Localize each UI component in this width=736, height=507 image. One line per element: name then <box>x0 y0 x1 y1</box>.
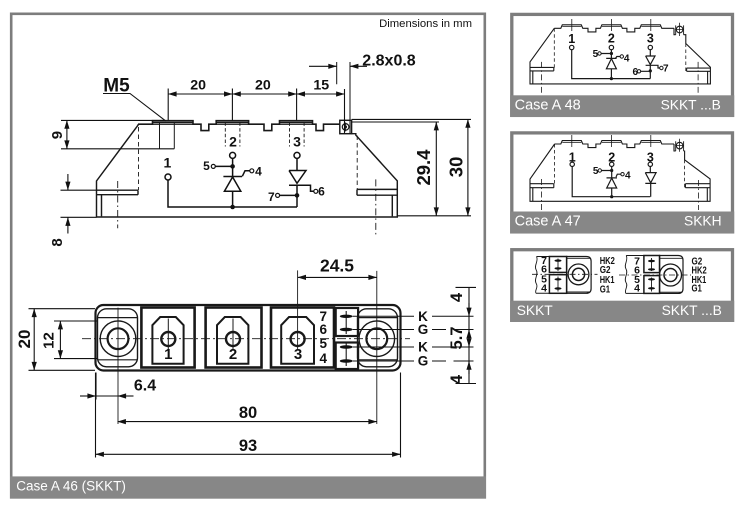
svg-text:20: 20 <box>255 78 271 94</box>
svg-text:5: 5 <box>203 159 210 173</box>
svg-text:4: 4 <box>448 292 466 302</box>
svg-text:4: 4 <box>448 374 466 384</box>
svg-text:3: 3 <box>294 346 302 363</box>
svg-text:20: 20 <box>15 330 34 349</box>
svg-text:M5: M5 <box>103 76 130 97</box>
svg-text:Dimensions in mm: Dimensions in mm <box>379 18 472 30</box>
svg-text:6: 6 <box>320 322 328 337</box>
svg-text:80: 80 <box>239 404 257 422</box>
svg-text:2: 2 <box>608 150 615 164</box>
svg-text:20: 20 <box>190 78 206 94</box>
svg-text:6.4: 6.4 <box>134 378 156 395</box>
svg-text:1: 1 <box>569 151 576 165</box>
svg-text:5: 5 <box>593 166 599 177</box>
svg-text:3: 3 <box>647 32 654 46</box>
svg-text:6: 6 <box>318 185 325 199</box>
svg-text:1: 1 <box>568 32 575 46</box>
svg-text:4: 4 <box>541 283 547 295</box>
svg-text:93: 93 <box>239 437 257 455</box>
svg-text:Case A 46 (SKKT): Case A 46 (SKKT) <box>16 479 126 494</box>
svg-text:15: 15 <box>313 78 329 94</box>
svg-text:G: G <box>418 322 429 337</box>
svg-text:5: 5 <box>593 49 599 60</box>
svg-text:K: K <box>418 340 428 355</box>
svg-text:24.5: 24.5 <box>320 256 354 276</box>
svg-text:SKKH: SKKH <box>684 213 722 228</box>
svg-text:Case A 48: Case A 48 <box>515 97 581 113</box>
svg-text:7: 7 <box>663 63 669 74</box>
svg-text:Case A 47: Case A 47 <box>515 213 581 229</box>
svg-text:SKKT: SKKT <box>517 303 554 318</box>
svg-text:SKKT ...B: SKKT ...B <box>662 303 722 318</box>
svg-text:2: 2 <box>229 134 237 150</box>
svg-text:3: 3 <box>293 134 301 150</box>
svg-text:4: 4 <box>255 165 262 179</box>
svg-text:4: 4 <box>320 351 328 366</box>
svg-text:6: 6 <box>633 67 639 78</box>
svg-text:12: 12 <box>40 332 57 349</box>
svg-text:2.8x0.8: 2.8x0.8 <box>362 53 415 70</box>
svg-text:8: 8 <box>49 238 66 246</box>
svg-text:G1: G1 <box>692 284 703 295</box>
svg-text:G1: G1 <box>600 285 611 296</box>
svg-text:2: 2 <box>229 346 237 363</box>
svg-text:5: 5 <box>320 336 328 351</box>
svg-text:SKKT ...B: SKKT ...B <box>661 97 721 112</box>
svg-text:4: 4 <box>634 283 640 295</box>
svg-text:5.7: 5.7 <box>448 327 466 350</box>
svg-text:30: 30 <box>446 157 467 178</box>
svg-text:2: 2 <box>608 32 615 46</box>
svg-text:9: 9 <box>49 131 66 139</box>
svg-text:4: 4 <box>624 53 630 64</box>
svg-text:3: 3 <box>647 151 654 165</box>
svg-text:1: 1 <box>164 346 172 363</box>
svg-text:G: G <box>418 354 429 369</box>
svg-text:4: 4 <box>625 171 631 182</box>
svg-text:29.4: 29.4 <box>413 149 434 186</box>
svg-text:1: 1 <box>164 155 172 171</box>
svg-text:7: 7 <box>268 190 275 204</box>
